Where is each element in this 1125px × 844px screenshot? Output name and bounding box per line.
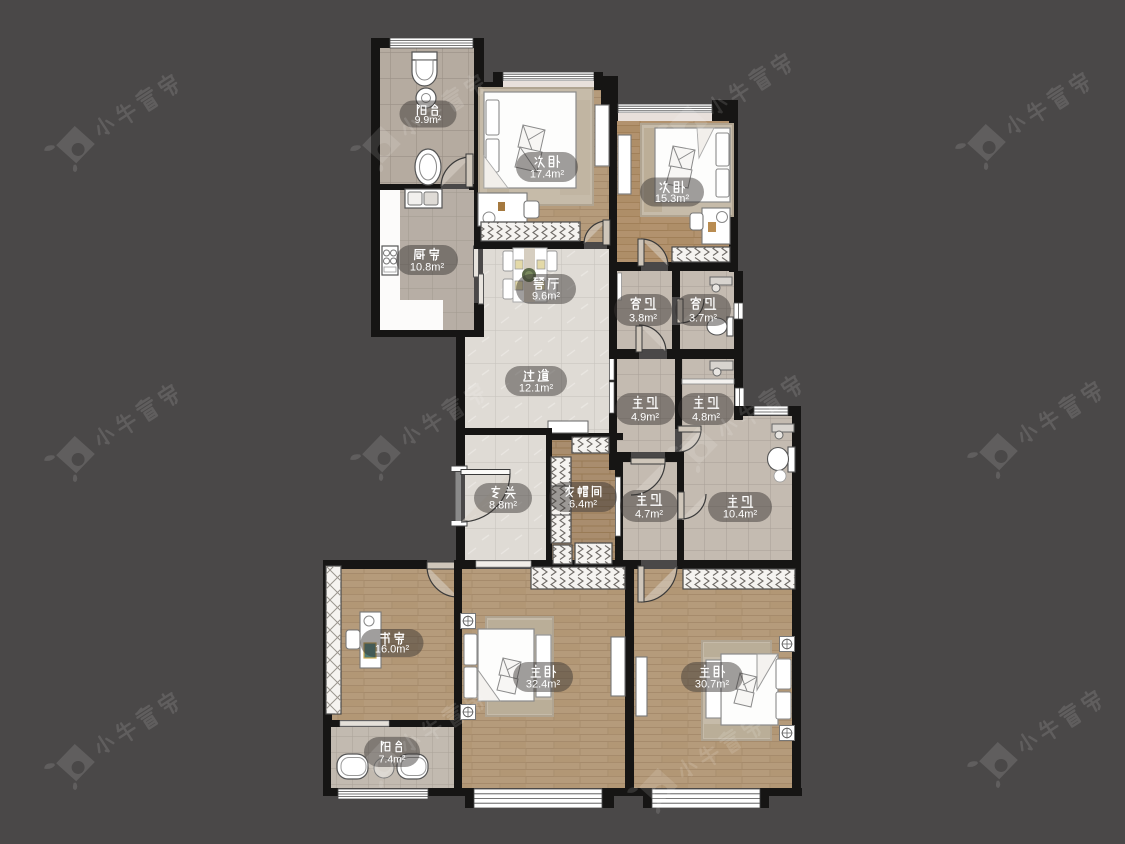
svg-text:12.1m²: 12.1m² [519, 383, 554, 395]
svg-text:9.6m²: 9.6m² [532, 291, 560, 303]
svg-text:30.7m²: 30.7m² [695, 679, 730, 691]
svg-text:6.4m²: 6.4m² [569, 499, 597, 511]
svg-text:8.8m²: 8.8m² [489, 500, 517, 512]
svg-text:17.4m²: 17.4m² [530, 169, 565, 181]
svg-text:4.7m²: 4.7m² [635, 509, 663, 521]
svg-text:10.4m²: 10.4m² [723, 509, 758, 521]
svg-text:3.8m²: 3.8m² [629, 313, 657, 325]
svg-text:10.8m²: 10.8m² [410, 262, 445, 274]
svg-text:4.8m²: 4.8m² [692, 412, 720, 424]
svg-text:32.4m²: 32.4m² [526, 679, 561, 691]
svg-text:16.0m²: 16.0m² [375, 644, 410, 656]
svg-text:3.7m²: 3.7m² [689, 313, 717, 325]
svg-text:4.9m²: 4.9m² [631, 412, 659, 424]
svg-text:15.3m²: 15.3m² [655, 193, 690, 205]
